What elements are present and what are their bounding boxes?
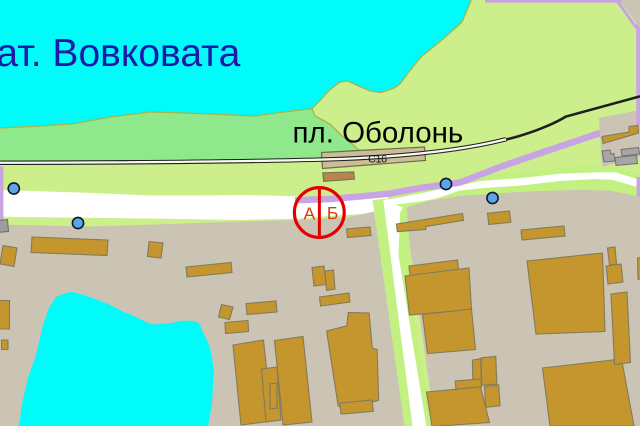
svg-text:А: А: [304, 203, 316, 223]
svg-text:С16: С16: [368, 154, 387, 166]
svg-text:зат. Вовковата: зат. Вовковата: [0, 32, 241, 75]
svg-text:пл. Оболонь: пл. Оболонь: [293, 116, 464, 149]
svg-text:Б: Б: [327, 203, 338, 223]
